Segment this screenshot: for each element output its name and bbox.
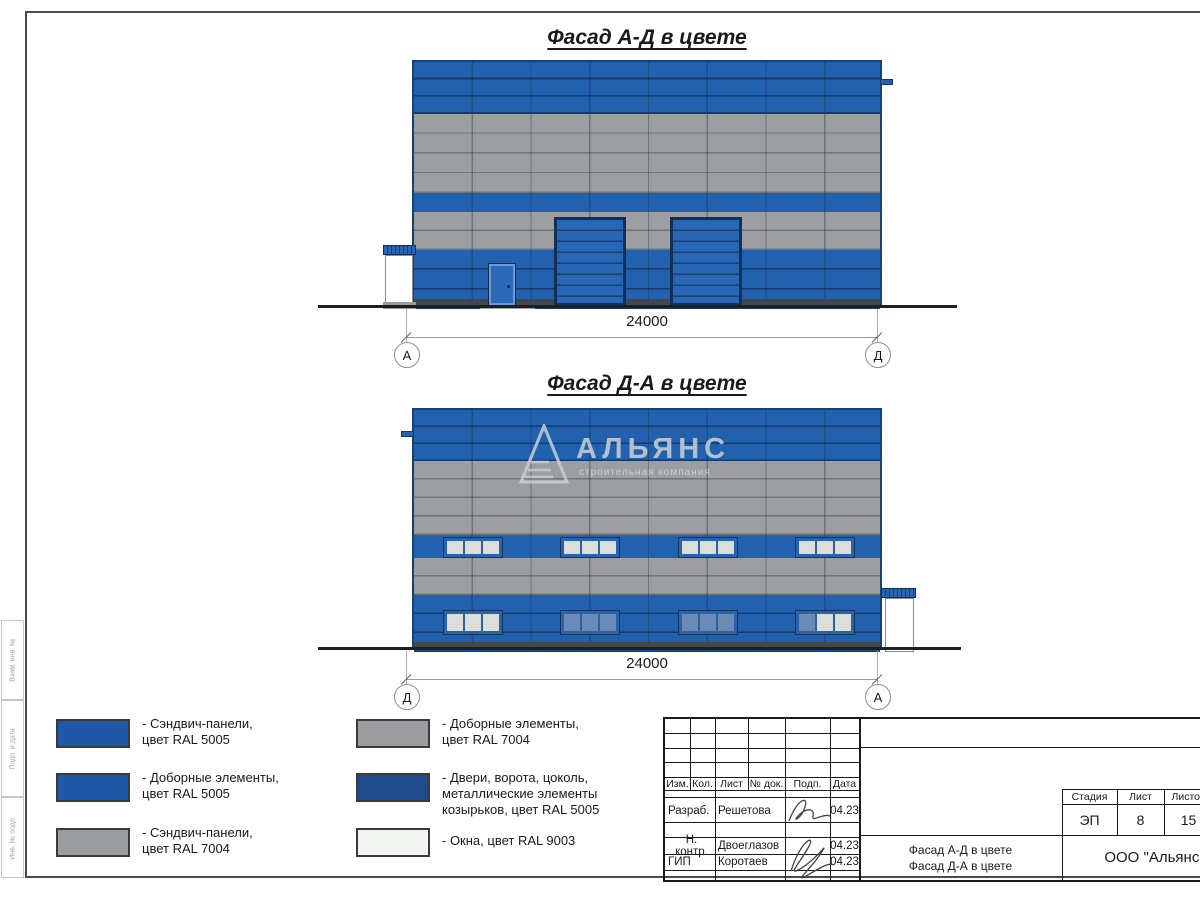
canopy-structure	[385, 255, 413, 309]
extension-line	[406, 651, 407, 687]
window-pane	[447, 614, 463, 631]
title-block-line	[665, 733, 859, 734]
legend-label: - Двери, ворота, цоколь, металлические э…	[442, 770, 599, 818]
legend-swatch-ral7004	[56, 828, 130, 857]
col-podp: Подп.	[785, 777, 830, 790]
drawing-name: Фасад А-Д в цвете Фасад Д-А в цвете	[859, 835, 1062, 880]
axis-marker-d: Д	[394, 684, 420, 710]
role-nkontr: Н. контр.	[668, 837, 715, 854]
sheet-header: Лист	[1117, 789, 1164, 804]
window	[443, 610, 503, 635]
signature	[783, 793, 833, 827]
facade-d-a-drawing: АЛЬЯНС строительная компания	[412, 408, 882, 650]
title-block-line	[859, 747, 1200, 748]
legend-swatch-ral5005-doors	[356, 773, 430, 802]
legend-swatch-ral7004	[356, 719, 430, 748]
title-block-line	[665, 790, 859, 791]
company-name: ООО "Альянс"	[1062, 835, 1200, 880]
title-block-line	[715, 719, 716, 880]
window-pane	[817, 614, 833, 631]
sheets-total: 15	[1164, 804, 1200, 835]
name-reshetova: Решетова	[718, 799, 784, 822]
watermark-tagline: строительная компания	[579, 467, 711, 478]
title-block: Изм. Кол. Лист № док. Подп. Дата Разраб.…	[663, 717, 1200, 882]
axis-letter: А	[874, 690, 883, 705]
window-pane	[582, 541, 598, 554]
window-pane	[835, 541, 851, 554]
sheet-number: 8	[1117, 804, 1164, 835]
window-pane	[600, 614, 616, 631]
window-pane	[564, 541, 580, 554]
facade-a-d-drawing	[412, 60, 882, 307]
window-pane	[817, 541, 833, 554]
legend-label: - Сэндвич-панели, цвет RAL 7004	[142, 825, 253, 857]
window-pane	[465, 541, 481, 554]
side-stamp-label: Взам. инв. №	[9, 638, 16, 681]
role-razrab: Разраб.	[668, 799, 715, 822]
window-pane	[483, 541, 499, 554]
dimension-value: 24000	[412, 655, 882, 672]
window-pane	[465, 614, 481, 631]
signature	[781, 831, 835, 879]
side-stamp-label: Инв. № подл.	[9, 816, 16, 860]
legend-label: - Доборные элементы, цвет RAL 5005	[142, 770, 279, 802]
legend-label: - Доборные элементы, цвет RAL 7004	[442, 716, 579, 748]
side-stamp-cell: Инв. № подл.	[1, 797, 24, 878]
window	[560, 537, 620, 558]
window-pane	[799, 614, 815, 631]
canopy-roof	[881, 588, 916, 598]
gutter-bracket	[401, 431, 414, 437]
col-list: Лист	[715, 777, 748, 790]
window-pane	[718, 614, 734, 631]
col-kol: Кол.	[690, 777, 715, 790]
door-handle	[507, 285, 510, 288]
axis-marker-a: А	[865, 684, 891, 710]
legend-swatch-ral5005	[56, 719, 130, 748]
side-stamp-cell: Взам. инв. №	[1, 620, 24, 700]
axis-letter: А	[403, 348, 412, 363]
ground-line	[318, 647, 961, 650]
name-korotaev: Коротаев	[718, 854, 784, 870]
axis-marker-d: Д	[865, 342, 891, 368]
window-pane	[700, 541, 716, 554]
window-pane	[483, 614, 499, 631]
dimension-value: 24000	[412, 313, 882, 330]
sheets-total-header: Листов	[1164, 789, 1200, 804]
window	[443, 537, 503, 558]
sectional-gate	[554, 217, 626, 306]
side-stamp-label: Подп. и дата	[9, 728, 16, 769]
canopy-structure	[885, 598, 914, 652]
window-pane	[700, 614, 716, 631]
axis-marker-a: А	[394, 342, 420, 368]
title-block-line	[665, 748, 859, 749]
col-izm: Изм.	[665, 777, 690, 790]
window-pane	[682, 614, 698, 631]
ground-line	[318, 305, 957, 308]
entrance-door	[489, 264, 515, 305]
window-pane	[799, 541, 815, 554]
legend-label: - Окна, цвет RAL 9003	[442, 833, 575, 849]
stage-value: ЭП	[1062, 804, 1117, 835]
dimension-line	[406, 337, 878, 338]
facade-d-a-title: Фасад Д-А в цвете	[412, 372, 882, 396]
window	[560, 610, 620, 635]
window-pane	[564, 614, 580, 631]
canopy-roof	[383, 245, 416, 255]
watermark-company-name: АЛЬЯНС	[576, 433, 730, 466]
axis-letter: Д	[874, 348, 883, 363]
role-gip: ГИП	[668, 854, 715, 870]
dimension-line	[406, 679, 878, 680]
panel-column-joints	[414, 62, 880, 305]
window	[795, 610, 855, 635]
window-pane	[718, 541, 734, 554]
extension-line	[406, 309, 407, 345]
axis-letter: Д	[403, 690, 412, 705]
window-pane	[600, 541, 616, 554]
window	[795, 537, 855, 558]
alliance-logo-watermark	[517, 424, 569, 484]
legend-swatch-ral5005	[56, 773, 130, 802]
col-ndok: № док.	[748, 777, 785, 790]
window	[678, 537, 738, 558]
sectional-gate	[670, 217, 742, 306]
legend-swatch-ral9003	[356, 828, 430, 857]
window-pane	[447, 541, 463, 554]
side-stamp-cell: Подп. и дата	[1, 700, 24, 797]
name-dvoeglazov: Двоеглазов	[718, 837, 784, 854]
stage-header: Стадия	[1062, 789, 1117, 804]
window-pane	[682, 541, 698, 554]
window-pane	[835, 614, 851, 631]
date-razrab: 04.23	[830, 799, 859, 822]
title-block-line	[665, 762, 859, 763]
facade-a-d-title: Фасад А-Д в цвете	[412, 26, 882, 50]
window-pane	[582, 614, 598, 631]
window	[678, 610, 738, 635]
drawing-sheet: Взам. инв. № Подп. и дата Инв. № подл. Ф…	[0, 0, 1200, 900]
legend-label: - Сэндвич-панели, цвет RAL 5005	[142, 716, 253, 748]
col-data: Дата	[830, 777, 859, 790]
gutter-bracket	[880, 79, 893, 85]
